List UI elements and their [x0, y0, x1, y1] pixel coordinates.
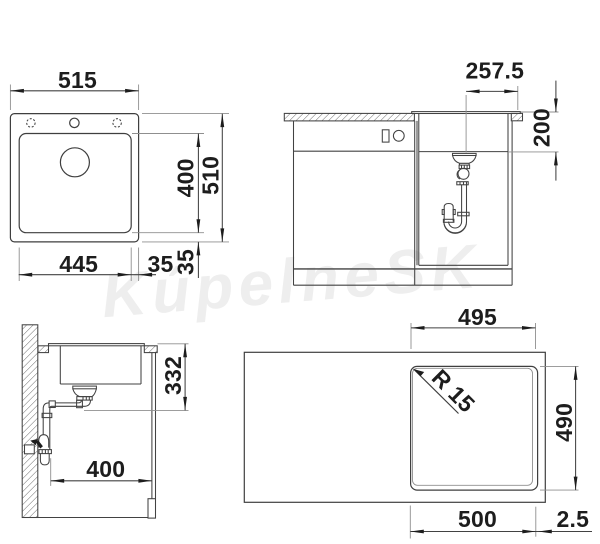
svg-text:500: 500: [458, 506, 497, 532]
svg-text:510: 510: [197, 156, 223, 195]
svg-text:257.5: 257.5: [466, 57, 525, 83]
svg-text:200: 200: [528, 108, 554, 147]
svg-text:490: 490: [551, 403, 577, 442]
svg-text:35: 35: [172, 249, 198, 275]
svg-text:495: 495: [458, 304, 497, 330]
svg-text:400: 400: [172, 158, 198, 197]
svg-text:400: 400: [86, 456, 125, 482]
svg-text:515: 515: [58, 67, 97, 93]
svg-text:35: 35: [148, 251, 174, 277]
svg-text:445: 445: [59, 251, 98, 277]
svg-text:2.5: 2.5: [557, 506, 590, 532]
svg-text:332: 332: [160, 356, 186, 395]
